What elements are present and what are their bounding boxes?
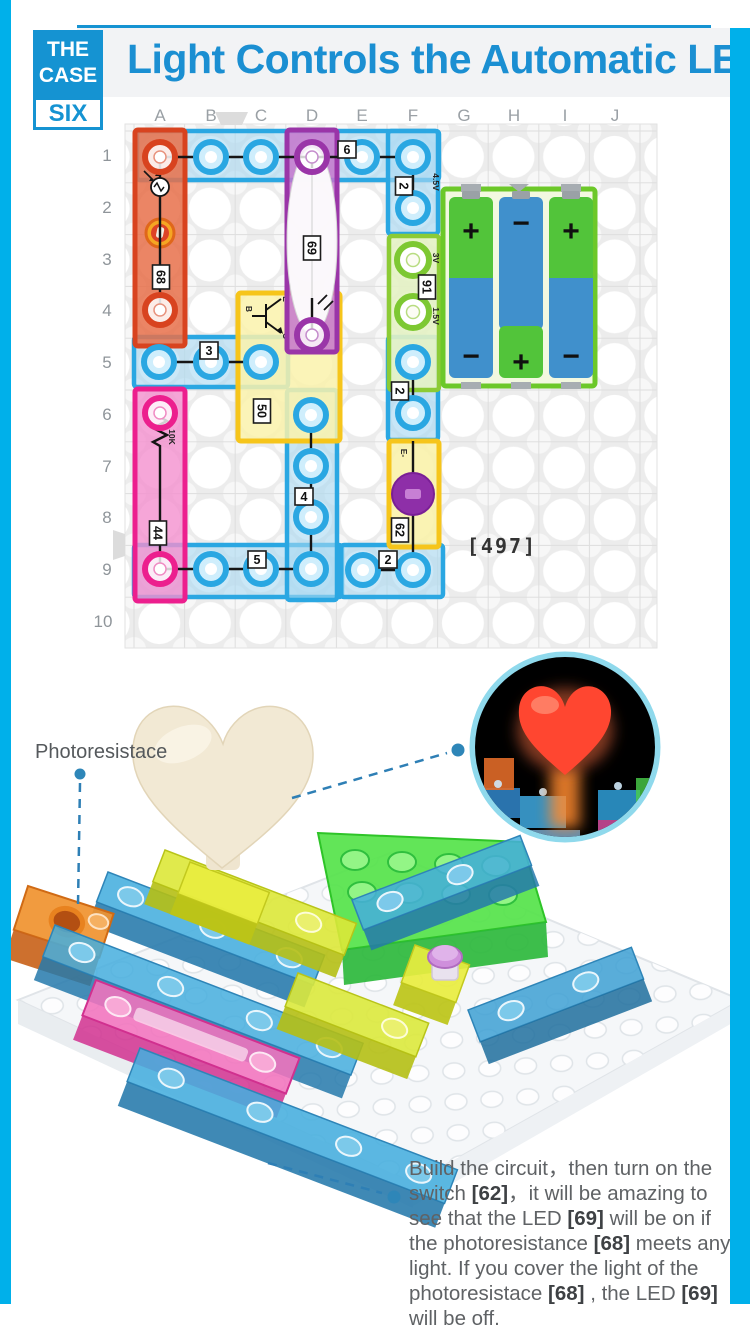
svg-text:−: − bbox=[562, 340, 580, 373]
col-H: H bbox=[508, 106, 520, 125]
row-headers: 1 2 3 4 5 6 7 8 9 10 bbox=[94, 146, 113, 631]
label-switch-e: E- bbox=[399, 449, 409, 458]
svg-text:5: 5 bbox=[102, 353, 111, 372]
svg-text:−: − bbox=[512, 207, 530, 240]
svg-text:−: − bbox=[462, 340, 480, 373]
board-tab-left bbox=[113, 530, 125, 560]
transistor-b-label: B bbox=[244, 306, 254, 312]
svg-text:1: 1 bbox=[102, 146, 111, 165]
lit-led-inset bbox=[475, 657, 672, 856]
col-J: J bbox=[611, 106, 620, 125]
col-E: E bbox=[356, 106, 367, 125]
col-A: A bbox=[154, 106, 166, 125]
label-wire-5: 5 bbox=[254, 553, 261, 567]
svg-text:6: 6 bbox=[102, 405, 111, 424]
battery-label: 91 bbox=[420, 280, 434, 294]
leader-heart-to-inset bbox=[292, 744, 465, 799]
svg-text:7: 7 bbox=[102, 457, 111, 476]
svg-text:+: + bbox=[462, 215, 480, 248]
col-D: D bbox=[306, 106, 318, 125]
badge-line-case: CASE bbox=[33, 63, 103, 89]
label-wire-2-mid: 2 bbox=[393, 388, 407, 395]
svg-text:3: 3 bbox=[102, 250, 111, 269]
badge-line-the: THE bbox=[33, 37, 103, 63]
case-badge-number: SIX bbox=[33, 97, 103, 130]
transistor-label: 50 bbox=[255, 404, 269, 418]
label-switch-62: 62 bbox=[393, 523, 407, 537]
col-F: F bbox=[408, 106, 418, 125]
svg-text:9: 9 bbox=[102, 560, 111, 579]
led-glow-column bbox=[550, 768, 580, 828]
battery-cell-3: + − bbox=[549, 191, 593, 378]
label-wire-2-bottom: 2 bbox=[385, 553, 392, 567]
case-badge-top: THE CASE bbox=[33, 30, 103, 97]
svg-text:8: 8 bbox=[102, 508, 111, 527]
label-photoresistor-68: 68 bbox=[154, 270, 168, 284]
header-rule bbox=[77, 25, 711, 28]
label-wire-2-top: 2 bbox=[397, 183, 411, 190]
battery-cell-2: − + bbox=[499, 191, 543, 379]
col-I: I bbox=[563, 106, 568, 125]
led-label: 69 bbox=[305, 241, 319, 255]
page-title: Light Controls the Automatic LED bbox=[127, 36, 750, 83]
circuit-diagram: A B C D E F G H I J 1 2 3 4 5 6 7 8 9 10 bbox=[0, 95, 750, 660]
callout-leader-photoresistor bbox=[75, 769, 86, 906]
svg-text:10: 10 bbox=[94, 612, 113, 631]
battery-cell-1: + − bbox=[449, 191, 493, 378]
battery-15v-label: 1.5V bbox=[431, 307, 441, 325]
label-10k: 10K bbox=[167, 429, 177, 445]
label-wire-3: 3 bbox=[206, 344, 213, 358]
svg-text:2: 2 bbox=[102, 198, 111, 217]
battery-holder: + − − + + − bbox=[443, 184, 595, 389]
label-resistor-44: 44 bbox=[151, 526, 165, 540]
instructions-text: Build the circuit，then turn on the switc… bbox=[409, 1156, 739, 1331]
page-border-left bbox=[0, 0, 11, 1304]
label-wire-4: 4 bbox=[301, 490, 308, 504]
board-tab-top bbox=[215, 112, 248, 125]
board-code: [497] bbox=[467, 534, 537, 558]
battery-45v-label: 4.5V bbox=[431, 173, 441, 191]
switch-button bbox=[392, 473, 434, 515]
col-C: C bbox=[255, 106, 267, 125]
label-wire-6: 6 bbox=[344, 143, 351, 157]
col-B: B bbox=[205, 106, 216, 125]
photoresistor-callout: Photoresistace bbox=[35, 741, 167, 763]
case-badge: THE CASE SIX bbox=[33, 30, 103, 130]
battery-3v-label: 3V bbox=[431, 253, 441, 264]
col-G: G bbox=[457, 106, 470, 125]
svg-text:+: + bbox=[512, 346, 530, 379]
svg-text:+: + bbox=[562, 215, 580, 248]
page-border-right bbox=[730, 28, 750, 1304]
svg-text:4: 4 bbox=[102, 301, 111, 320]
